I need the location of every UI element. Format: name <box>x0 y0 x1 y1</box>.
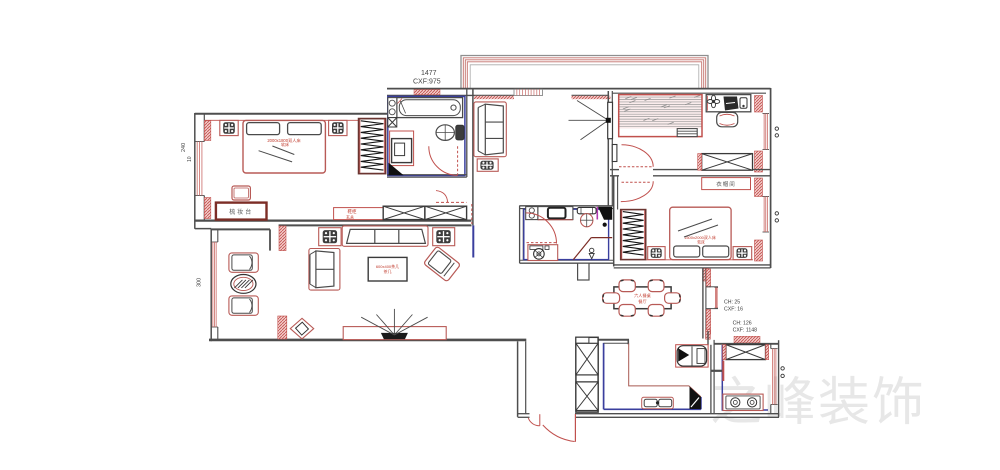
svg-text:600x400茶几: 600x400茶几 <box>376 263 399 269</box>
svg-text:CXF: 16: CXF: 16 <box>724 307 743 313</box>
svg-text:梳妆台: 梳妆台 <box>229 208 253 216</box>
svg-text:玄关: 玄关 <box>346 214 354 220</box>
svg-text:衣帽间: 衣帽间 <box>716 180 736 188</box>
svg-text:300: 300 <box>197 278 203 287</box>
svg-text:软床: 软床 <box>697 239 705 244</box>
svg-text:1477: 1477 <box>421 70 437 77</box>
svg-text:240: 240 <box>181 143 187 152</box>
svg-text:茶几: 茶几 <box>384 268 392 274</box>
svg-text:CXF:975: CXF:975 <box>413 79 441 86</box>
svg-text:CH: 126: CH: 126 <box>733 321 752 327</box>
svg-text:餐厅: 餐厅 <box>638 298 646 305</box>
svg-text:10: 10 <box>187 156 193 162</box>
svg-text:软床: 软床 <box>281 141 289 147</box>
svg-text:六人餐桌: 六人餐桌 <box>634 292 652 299</box>
svg-text:CXF: 1148: CXF: 1148 <box>733 328 758 334</box>
svg-text:CH: 25: CH: 25 <box>724 300 740 306</box>
